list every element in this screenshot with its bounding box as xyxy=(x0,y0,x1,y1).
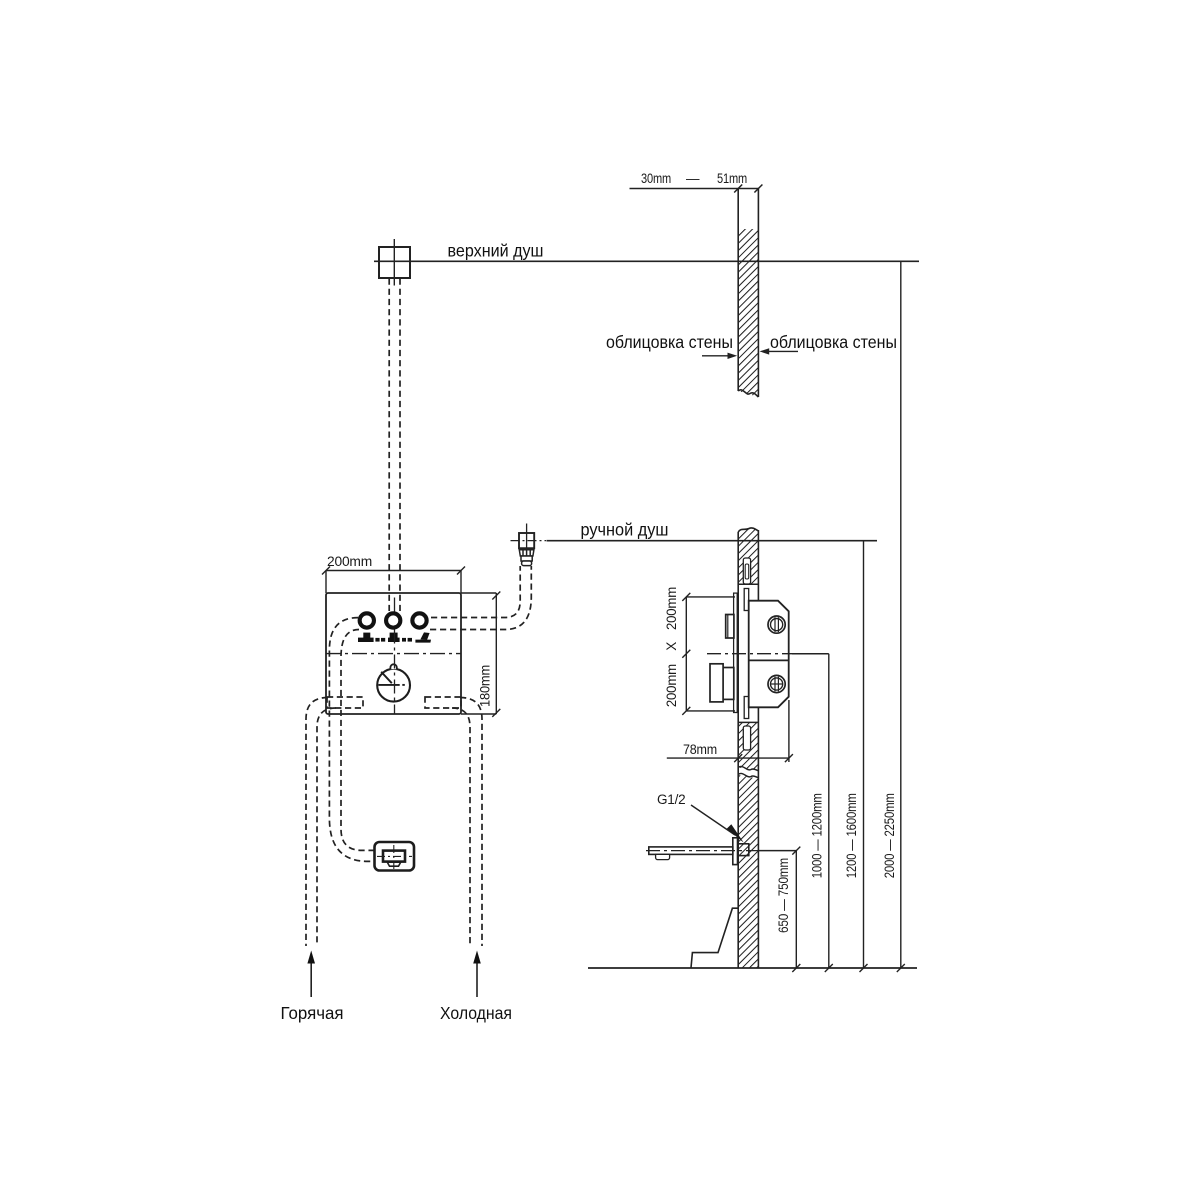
svg-text:1200 — 1600mm: 1200 — 1600mm xyxy=(844,793,859,878)
svg-text:X: X xyxy=(664,642,679,651)
svg-text:180mm: 180mm xyxy=(478,665,493,707)
svg-text:ручной душ: ручной душ xyxy=(581,520,669,540)
svg-text:—: — xyxy=(686,171,700,186)
svg-text:1000 — 1200mm: 1000 — 1200mm xyxy=(810,793,825,878)
svg-text:2000 — 2250mm: 2000 — 2250mm xyxy=(882,793,897,878)
svg-text:78mm: 78mm xyxy=(683,742,717,757)
svg-text:650 — 750mm: 650 — 750mm xyxy=(776,858,791,933)
svg-text:200mm: 200mm xyxy=(664,587,679,630)
svg-text:Горячая: Горячая xyxy=(281,1003,344,1023)
svg-text:облицовка стены: облицовка стены xyxy=(770,332,897,352)
svg-text:верхний душ: верхний душ xyxy=(448,241,544,261)
svg-text:51mm: 51mm xyxy=(717,171,747,186)
svg-text:облицовка стены: облицовка стены xyxy=(606,332,733,352)
svg-text:G1/2: G1/2 xyxy=(657,792,685,807)
svg-text:Холодная: Холодная xyxy=(440,1003,512,1023)
svg-text:200mm: 200mm xyxy=(327,554,372,569)
svg-text:200mm: 200mm xyxy=(664,664,679,707)
svg-text:30mm: 30mm xyxy=(641,171,671,186)
